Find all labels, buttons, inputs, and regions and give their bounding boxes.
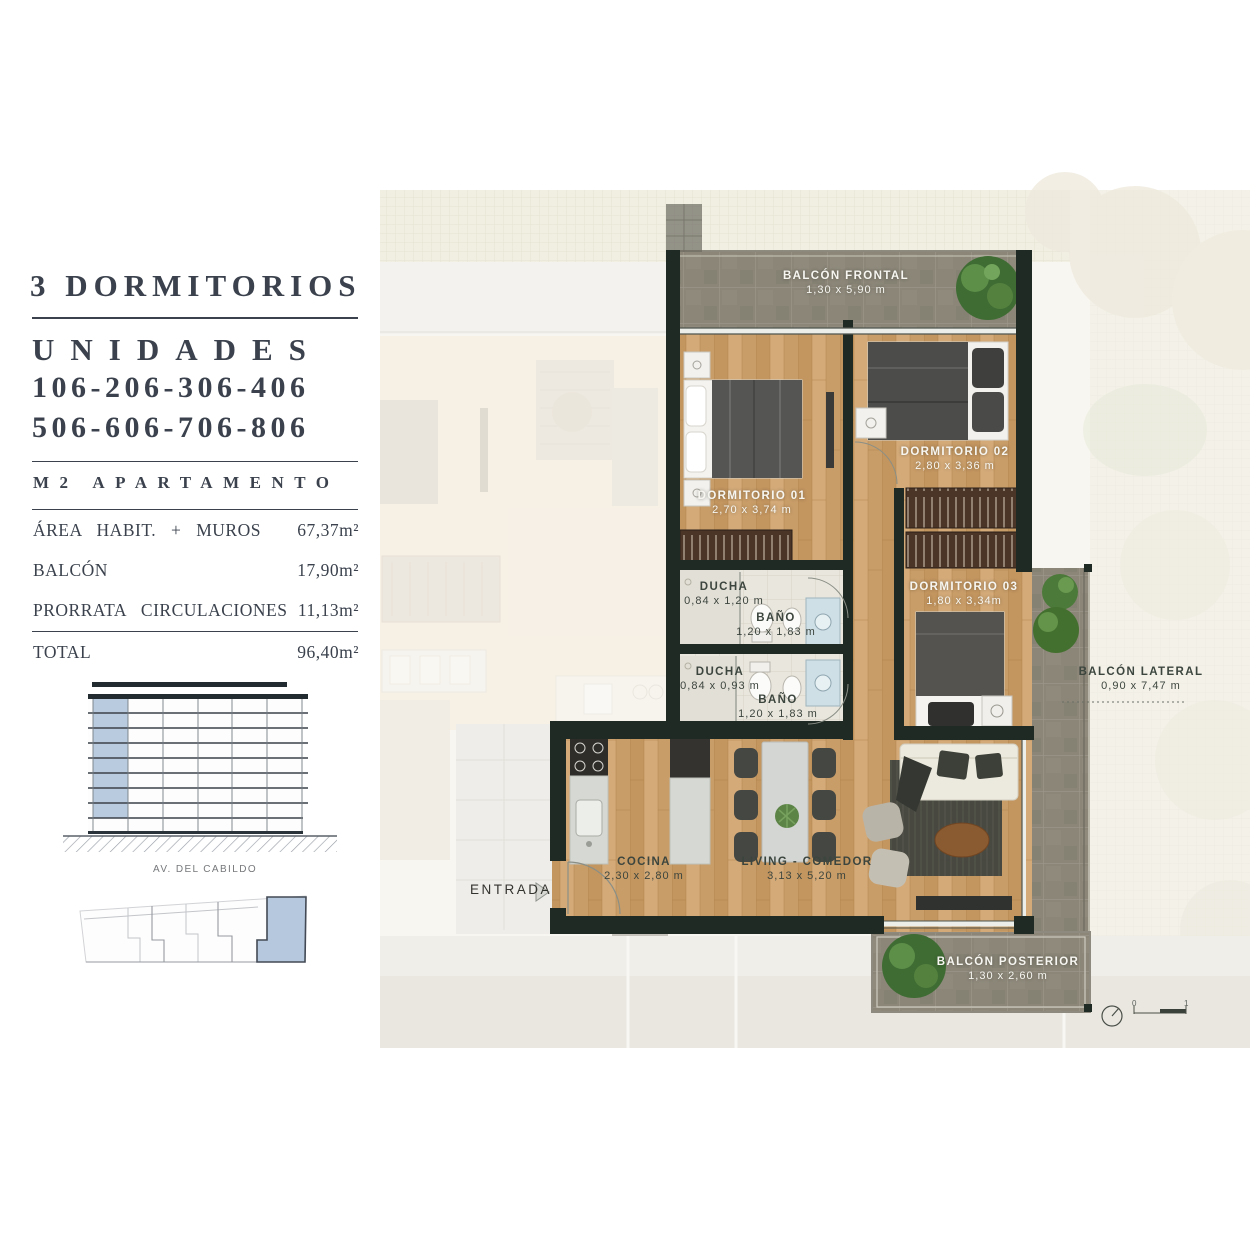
row-label: BALCÓN	[33, 560, 108, 581]
scale-start: 0	[1132, 999, 1136, 1008]
table-row: ÁREA HABIT. + MUROS 67,37m²	[33, 520, 359, 541]
unidades-heading: UNIDADES	[32, 332, 368, 368]
room-label-dormitorio-03: DORMITORIO 03 1,80 x 3,34m	[910, 581, 1019, 608]
divider	[32, 461, 358, 462]
street-label: AV. DEL CABILDO	[60, 864, 350, 875]
page-title: 3 DORMITORIOS	[30, 268, 370, 304]
row-value: 11,13m²	[298, 600, 359, 621]
bed-dorm02	[856, 342, 1008, 440]
room-label-dormitorio-02: DORMITORIO 02 2,80 x 3,36 m	[901, 446, 1010, 473]
bed-dorm03	[916, 612, 1012, 738]
room-label-balcon-posterior: BALCÓN POSTERIOR 1,30 x 2,60 m	[937, 956, 1080, 983]
unit-numbers-line2: 506-606-706-806	[32, 411, 368, 445]
entrance-label: ENTRADA	[470, 882, 552, 897]
brochure-page: 3 DORMITORIOS UNIDADES 106-206-306-406 5…	[0, 0, 1250, 1250]
room-label-cocina: COCINA 2,30 x 2,80 m	[604, 856, 684, 883]
row-value: 17,90m²	[297, 560, 359, 581]
room-label-bano-2: BAÑO 1,20 x 1,83 m	[738, 694, 818, 721]
wardrobe-dorm03	[906, 532, 1022, 568]
row-value: 67,37m²	[297, 520, 359, 541]
room-label-ducha-1: DUCHA 0,84 x 1,20 m	[684, 581, 764, 608]
row-label: PRORRATA CIRCULACIONES	[33, 600, 287, 621]
plan-graphics	[0, 0, 1250, 1250]
table-row: PRORRATA CIRCULACIONES 11,13m²	[33, 600, 359, 621]
room-label-ducha-2: DUCHA 0,84 x 0,93 m	[680, 666, 760, 693]
room-label-bano-1: BAÑO 1,20 x 1,83 m	[736, 612, 816, 639]
room-label-balcon-lateral: BALCÓN LATERAL 0,90 x 7,47 m	[1079, 666, 1204, 693]
wardrobe-dorm02	[906, 488, 1022, 528]
divider	[32, 317, 358, 319]
total-row: TOTAL 96,40m²	[33, 642, 359, 663]
row-label: ÁREA HABIT. + MUROS	[33, 520, 261, 541]
divider	[32, 509, 358, 510]
building-elevation	[63, 682, 337, 852]
total-label: TOTAL	[33, 642, 91, 663]
table-row: BALCÓN 17,90m²	[33, 560, 359, 581]
room-label-living-comedor: LIVING - COMEDOR 3,13 x 5,20 m	[741, 856, 872, 883]
scale-end: 1	[1184, 999, 1188, 1008]
total-value: 96,40m²	[297, 642, 359, 663]
unit-numbers-line1: 106-206-306-406	[32, 371, 368, 405]
site-key-plan	[80, 896, 306, 962]
room-label-dormitorio-01: DORMITORIO 01 2,70 x 3,74 m	[698, 490, 807, 517]
divider	[32, 631, 358, 632]
room-label-balcon-frontal: BALCÓN FRONTAL 1,30 x 5,90 m	[783, 270, 909, 297]
area-table-header: M2 APARTAMENTO	[33, 473, 363, 493]
